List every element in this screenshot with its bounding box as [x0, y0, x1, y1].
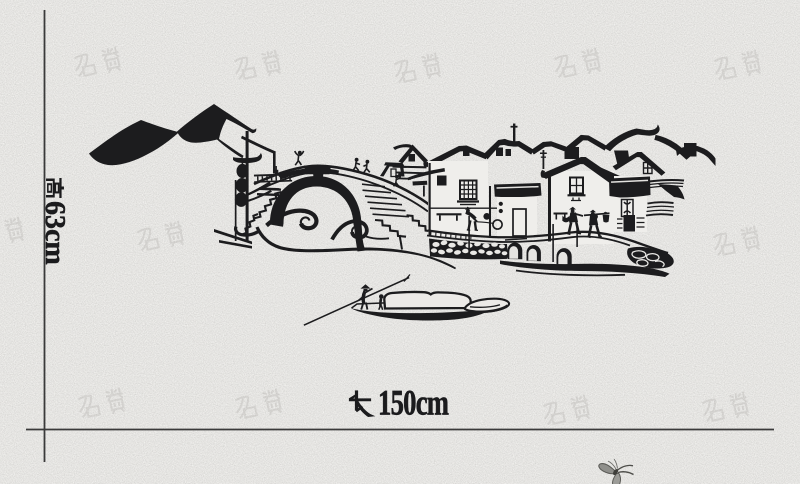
svg-text:63cm: 63cm	[39, 201, 70, 265]
svg-text:150cm: 150cm	[378, 383, 449, 423]
